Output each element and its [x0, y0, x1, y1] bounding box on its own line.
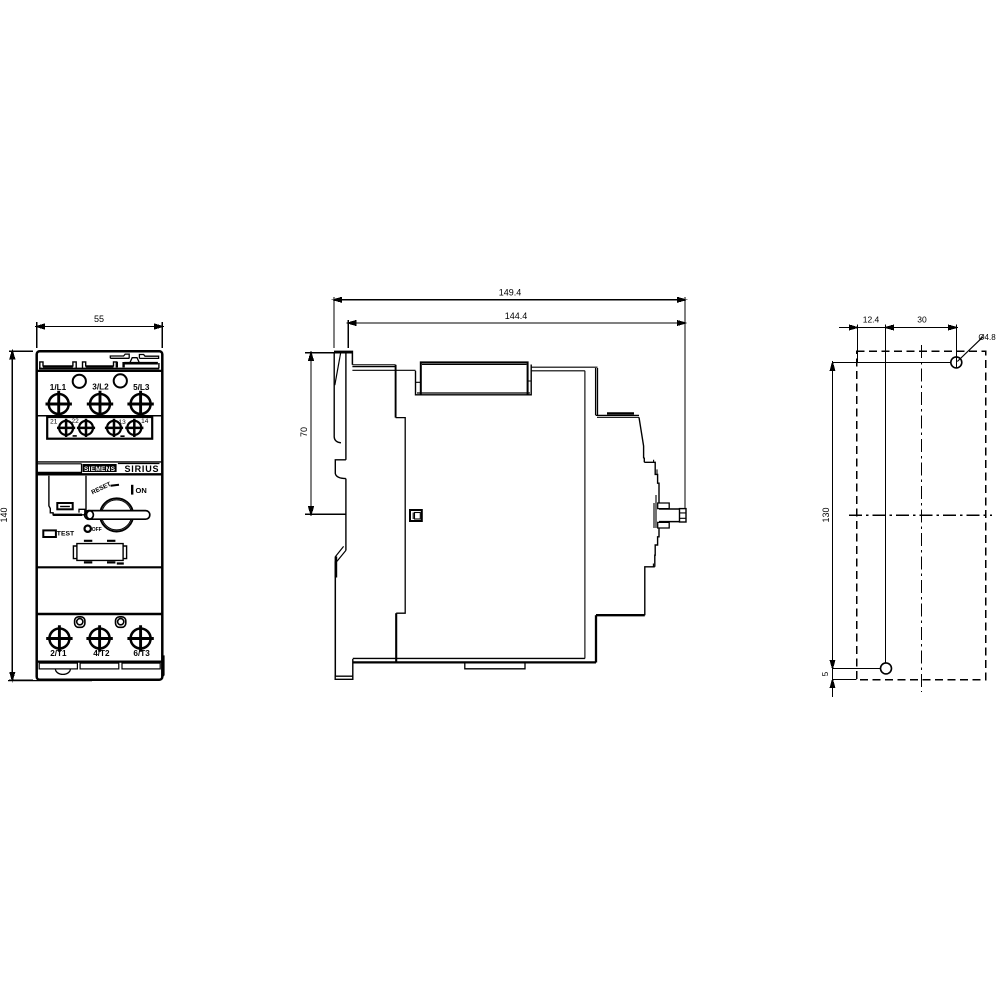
svg-text:4/T2: 4/T2 [93, 649, 110, 658]
svg-text:2/T1: 2/T1 [50, 649, 67, 658]
svg-text:TEST: TEST [57, 531, 75, 538]
svg-text:144.4: 144.4 [505, 311, 528, 321]
svg-text:21: 21 [50, 419, 58, 426]
svg-text:6/T3: 6/T3 [133, 649, 150, 658]
svg-text:70: 70 [299, 427, 309, 437]
svg-text:OFF: OFF [92, 527, 102, 533]
svg-text:14: 14 [141, 418, 149, 425]
svg-text:5: 5 [821, 671, 830, 676]
svg-text:30: 30 [917, 315, 927, 325]
svg-text:3/L2: 3/L2 [92, 383, 109, 392]
svg-text:SIEMENS: SIEMENS [84, 466, 116, 473]
svg-text:ON: ON [136, 486, 147, 495]
svg-text:12.4: 12.4 [863, 315, 880, 325]
svg-text:1/L1: 1/L1 [50, 383, 67, 392]
svg-text:Ø4.8: Ø4.8 [978, 333, 996, 342]
svg-text:149.4: 149.4 [499, 288, 522, 298]
svg-text:SIRIUS: SIRIUS [125, 464, 159, 474]
svg-text:140: 140 [0, 507, 9, 522]
svg-text:55: 55 [94, 314, 104, 324]
svg-text:5/L3: 5/L3 [133, 383, 150, 392]
svg-text:130: 130 [821, 507, 831, 522]
